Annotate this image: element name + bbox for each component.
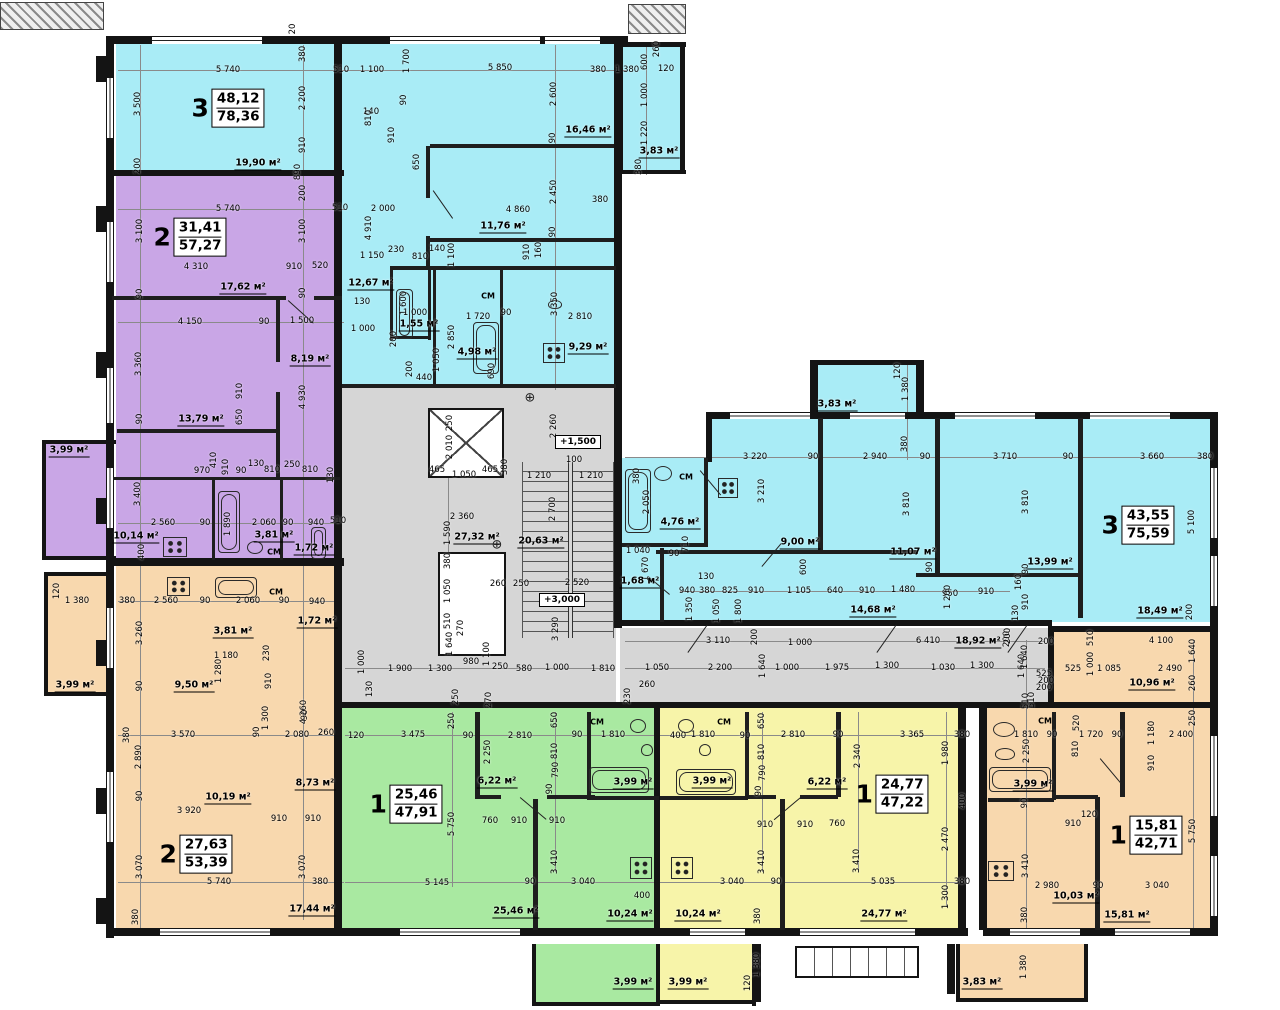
dimension-label: 600 bbox=[800, 559, 809, 575]
dimension-label: 910 bbox=[523, 244, 532, 260]
dimension-label: 1 500 bbox=[290, 317, 314, 326]
wall bbox=[42, 440, 46, 560]
dimension-label: 1 050 bbox=[713, 599, 722, 623]
dimension-label: 760 bbox=[482, 817, 498, 826]
window bbox=[1115, 929, 1190, 935]
apartment-label: 124,7747,22 bbox=[855, 775, 928, 814]
dimension-label: 1 975 bbox=[825, 664, 849, 673]
dimension-label: 5 100 bbox=[1188, 510, 1197, 534]
dimension-label: 690 bbox=[488, 363, 497, 379]
washing-machine-label: СМ bbox=[590, 718, 604, 727]
level-mark: +3,000 bbox=[539, 593, 585, 607]
dimension-label: 4 860 bbox=[506, 206, 530, 215]
dimension-label: 1 000 bbox=[358, 650, 367, 674]
total-area-value: 57,27 bbox=[179, 238, 222, 255]
dimension-label: 200 bbox=[406, 361, 415, 377]
window bbox=[1211, 736, 1217, 816]
dimension-label: 250 bbox=[446, 415, 455, 431]
dimension-label: 380 bbox=[501, 459, 510, 475]
washing-machine-label: СМ bbox=[1038, 717, 1052, 726]
dimension-label: 5 145 bbox=[425, 879, 449, 888]
dimension-label: 1 640 bbox=[759, 654, 768, 678]
partition-wall bbox=[916, 573, 1080, 577]
dimension-label: 380 bbox=[954, 878, 970, 887]
total-area-value: 47,22 bbox=[881, 795, 924, 812]
apartment-area-box: 43,5575,59 bbox=[1122, 506, 1175, 545]
room-area-label: 15,81 м² bbox=[1103, 910, 1150, 923]
dimension-label: 410 bbox=[210, 452, 219, 468]
dimension-label: 3 365 bbox=[900, 731, 924, 740]
dimension-label: 380 bbox=[123, 727, 132, 743]
window bbox=[1211, 468, 1217, 538]
dimension-label: 510 bbox=[330, 517, 346, 526]
dimension-label: 510 bbox=[333, 66, 349, 75]
dimension-label: 465 bbox=[482, 466, 498, 475]
region-apt1g-balcony bbox=[534, 944, 658, 1002]
dimension-label: 2 060 bbox=[236, 597, 260, 606]
apartment-rooms-count: 1 bbox=[1109, 823, 1126, 848]
dimension-label: 90 bbox=[1112, 731, 1123, 740]
window bbox=[1090, 413, 1170, 419]
dimension-label: 1 000 bbox=[351, 325, 375, 334]
dimension-label: 120 bbox=[53, 583, 62, 599]
dimension-label: 3 660 bbox=[1140, 453, 1164, 462]
apartment-label: 115,8142,71 bbox=[1109, 816, 1182, 855]
dimension-label: 1 000 bbox=[1087, 652, 1096, 676]
window bbox=[545, 37, 600, 44]
dimension-label: 90 bbox=[200, 597, 211, 606]
apartment-rooms-count: 3 bbox=[1101, 513, 1118, 538]
window bbox=[107, 608, 113, 668]
dimension-label: 200 bbox=[390, 331, 399, 347]
partition-wall bbox=[1078, 418, 1083, 618]
dimension-label: 380 bbox=[119, 597, 135, 606]
wall bbox=[616, 170, 686, 174]
dimension-label: 940 bbox=[309, 598, 325, 607]
dimension-label: 910 bbox=[549, 817, 565, 826]
dimension-label: 3 920 bbox=[177, 807, 201, 816]
dimension-label: 2 450 bbox=[550, 180, 559, 204]
dimension-label: 2 010 bbox=[446, 435, 455, 459]
dimension-label: 130 bbox=[1012, 605, 1021, 621]
room-area-label: 3,99 м² bbox=[668, 977, 709, 990]
dimension-label: 90 bbox=[572, 731, 583, 740]
apartment-label: 231,4157,27 bbox=[153, 218, 226, 257]
dimension-label: 940 bbox=[679, 587, 695, 596]
dimension-label: 1 590 bbox=[444, 521, 453, 545]
wall bbox=[44, 572, 48, 696]
dimension-label: 90 bbox=[1021, 798, 1030, 809]
dimension-label: 380 bbox=[633, 468, 642, 484]
stove-icon bbox=[718, 478, 738, 498]
dimension-label: 5 850 bbox=[488, 64, 512, 73]
partition-wall bbox=[660, 796, 748, 800]
dimension-label: 910 bbox=[286, 263, 302, 272]
dimension-label: 1 300 bbox=[428, 665, 452, 674]
dimension-label: 2 850 bbox=[448, 325, 457, 349]
dimension-label: 90 bbox=[136, 414, 145, 425]
partition-wall bbox=[1056, 795, 1098, 799]
dimension-label: 380 bbox=[132, 909, 141, 925]
living-area-value: 27,63 bbox=[185, 837, 228, 855]
dimension-label: 2 560 bbox=[154, 597, 178, 606]
floor-plan: 203805 7405101 1001 7005 8503801 3806002… bbox=[0, 0, 1280, 1010]
dimension-label: 650 bbox=[236, 409, 245, 425]
room-area-label: 17,44 м² bbox=[288, 904, 335, 917]
dimension-label: 1 100 bbox=[448, 243, 457, 267]
dimension-label: 910 bbox=[222, 459, 231, 475]
dimension-label: 90 bbox=[136, 791, 145, 802]
dimension-label: 2 200 bbox=[299, 86, 308, 110]
dimension-label: 3 400 bbox=[134, 482, 143, 506]
wall bbox=[956, 998, 1088, 1002]
dimension-label: 400 bbox=[634, 892, 650, 901]
dimension-label: 910 bbox=[265, 673, 274, 689]
washing-machine-label: СМ bbox=[679, 473, 693, 482]
dimension-label: 1 980 bbox=[942, 741, 951, 765]
room-area-label: 4,98 м² bbox=[457, 347, 498, 360]
room-area-label: 6,22 м² bbox=[477, 776, 518, 789]
dimension-label: 400 bbox=[670, 732, 686, 741]
dimension-label: 3 570 bbox=[171, 731, 195, 740]
wall bbox=[44, 572, 110, 576]
dimension-label: 3 100 bbox=[136, 219, 145, 243]
dimension-label: 3 410 bbox=[1022, 854, 1031, 878]
room-area-label: 10,96 м² bbox=[1128, 678, 1175, 691]
dimension-label: 1 300 bbox=[875, 662, 899, 671]
dimension-label: 3 410 bbox=[758, 850, 767, 874]
dimension-label: 400 bbox=[959, 793, 968, 809]
dimension-label: 1 380 bbox=[1020, 955, 1029, 979]
dimension-label: 970 bbox=[194, 467, 210, 476]
survey-mark: ⊕ bbox=[525, 391, 536, 406]
toilet-icon bbox=[993, 722, 1015, 737]
dimension-label: 5 740 bbox=[216, 205, 240, 214]
wall bbox=[532, 1002, 660, 1006]
room-area-label: 10,14 м² bbox=[112, 531, 159, 544]
dimension-label: 270 bbox=[457, 620, 466, 636]
dimension-label: 380 bbox=[954, 731, 970, 740]
dimension-label: 1 000 bbox=[545, 664, 569, 673]
dimension-label: 3 220 bbox=[743, 453, 767, 462]
dimension-label: 2 000 bbox=[371, 205, 395, 214]
window bbox=[107, 772, 113, 842]
dimension-label: 1 050 bbox=[433, 348, 442, 372]
dimension-label: 910 bbox=[1148, 755, 1157, 771]
dimension-label: 1 000 bbox=[775, 664, 799, 673]
dimension-label: 650 bbox=[758, 713, 767, 729]
room-area-label: 3,83 м² bbox=[817, 399, 858, 412]
dimension-label: 90 bbox=[1063, 453, 1074, 462]
dimension-label: 90 bbox=[259, 318, 270, 327]
partition-wall bbox=[656, 550, 918, 554]
room-area-label: 12,67 м² bbox=[347, 278, 394, 291]
room-area-label: 3,81 м² bbox=[213, 626, 254, 639]
window bbox=[1211, 556, 1217, 606]
dimension-label: 1 380 bbox=[65, 597, 89, 606]
room-area-label: 3,99 м² bbox=[692, 776, 733, 789]
stove-icon bbox=[671, 857, 693, 879]
window bbox=[1211, 856, 1217, 916]
room-area-label: 10,24 м² bbox=[606, 909, 653, 922]
dimension-label: 910 bbox=[1065, 820, 1081, 829]
dimension-label: 1 180 bbox=[1148, 721, 1157, 745]
survey-mark: ⊕ bbox=[492, 538, 503, 553]
dimension-label: 4 100 bbox=[1149, 637, 1173, 646]
dimension-label: 90 bbox=[400, 95, 409, 106]
dimension-label: 520 bbox=[312, 262, 328, 271]
dimension-label: 1 050 bbox=[452, 471, 476, 480]
dimension-label: 3 810 bbox=[903, 492, 912, 516]
apartment-area-box: 48,1278,36 bbox=[212, 89, 265, 128]
dimension-label: 4 910 bbox=[365, 216, 374, 240]
wall bbox=[979, 708, 987, 930]
living-area-value: 43,55 bbox=[1127, 508, 1170, 526]
room-area-label: 3,83 м² bbox=[962, 977, 1003, 990]
dimension-label: 1 720 bbox=[1079, 731, 1103, 740]
dimension-label: 90 bbox=[549, 227, 558, 238]
dimension-label: 510 bbox=[1087, 630, 1096, 646]
room-area-label: 1,68 м² bbox=[620, 576, 661, 589]
dimension-label: 260 bbox=[653, 41, 662, 57]
dimension-label: 250 bbox=[448, 713, 457, 729]
dimension-label: 380 bbox=[901, 436, 910, 452]
dimension-label: 5 740 bbox=[207, 878, 231, 887]
apartment-label: 343,5575,59 bbox=[1101, 506, 1174, 545]
living-area-value: 31,41 bbox=[179, 220, 222, 238]
dimension-label: 1 050 bbox=[645, 664, 669, 673]
dimension-label: 1 300 bbox=[262, 706, 271, 730]
wall bbox=[42, 556, 116, 560]
dimension-label: 200 bbox=[1038, 677, 1054, 686]
room-area-label: 3,99 м² bbox=[613, 777, 654, 790]
dimension-label: 160 bbox=[535, 242, 544, 258]
total-area-value: 53,39 bbox=[185, 855, 228, 872]
window bbox=[160, 929, 270, 935]
dimension-label: 810 bbox=[264, 466, 280, 475]
wall bbox=[956, 944, 960, 1002]
stove-icon bbox=[630, 857, 652, 879]
dimension-label: 20 bbox=[289, 24, 298, 35]
apartment-rooms-count: 2 bbox=[159, 842, 176, 867]
apartment-rooms-count: 3 bbox=[191, 96, 208, 121]
dimension-label: 825 bbox=[722, 587, 738, 596]
dimension-label: 1 480 bbox=[891, 586, 915, 595]
dimension-label: 120 bbox=[1081, 811, 1097, 820]
dimension-label: 5 740 bbox=[216, 66, 240, 75]
apartment-rooms-count: 2 bbox=[153, 225, 170, 250]
wall bbox=[810, 360, 924, 365]
room-area-label: 13,79 м² bbox=[177, 414, 224, 427]
dimension-label: 380 bbox=[1197, 453, 1213, 462]
dimension-label: 810 bbox=[551, 743, 560, 759]
window bbox=[800, 929, 915, 935]
dimension-label: 90 bbox=[755, 786, 764, 797]
dimension-label: 465 bbox=[429, 466, 445, 475]
dimension-label: 230 bbox=[263, 645, 272, 661]
dimension-label: 2 050 bbox=[643, 490, 652, 514]
dimension-label: 3 710 bbox=[993, 453, 1017, 462]
dimension-label: 1 890 bbox=[224, 512, 233, 536]
dimension-label: 810 bbox=[758, 744, 767, 760]
dimension-label: 910 bbox=[797, 821, 813, 830]
partition-wall bbox=[818, 418, 823, 551]
wall bbox=[44, 692, 110, 696]
dimension-label: 1 220 bbox=[641, 121, 650, 145]
dimension-label: 120 bbox=[744, 975, 753, 991]
dimension-label: 2 560 bbox=[151, 519, 175, 528]
living-area-value: 24,77 bbox=[881, 777, 924, 795]
dimension-label: 3 810 bbox=[1022, 490, 1031, 514]
dimension-label: 810 bbox=[302, 466, 318, 475]
dimension-label: 1 900 bbox=[388, 665, 412, 674]
dimension-label: 940 bbox=[308, 519, 324, 528]
dimension-label: 1 380 bbox=[902, 377, 911, 401]
dimension-label: 1 105 bbox=[787, 587, 811, 596]
dimension-label: 2 340 bbox=[854, 744, 863, 768]
dimension-label: 2 250 bbox=[1023, 739, 1032, 763]
sink-icon bbox=[641, 744, 653, 756]
dimension-label: 90 bbox=[1093, 882, 1104, 891]
room-area-label: 18,92 м² bbox=[954, 636, 1001, 649]
dimension-label: 160 bbox=[1015, 574, 1024, 590]
room-area-label: 9,50 м² bbox=[174, 680, 215, 693]
dimension-label: 980 bbox=[463, 658, 479, 667]
dimension-label: 2 490 bbox=[1158, 665, 1182, 674]
dimension-label: 1 000 bbox=[788, 639, 812, 648]
dimension-label: 910 bbox=[978, 588, 994, 597]
dimension-label: 260 bbox=[318, 729, 334, 738]
partition-wall bbox=[426, 146, 430, 198]
dimension-label: 380 bbox=[635, 159, 644, 175]
dimension-label: 250 bbox=[1189, 710, 1198, 726]
partition-wall bbox=[314, 296, 342, 300]
dimension-label: 1 050 bbox=[444, 579, 453, 603]
dimension-label: 1 000 bbox=[403, 309, 427, 318]
window bbox=[400, 929, 520, 935]
total-area-value: 78,36 bbox=[217, 109, 260, 126]
window bbox=[107, 468, 113, 528]
dimension-label: 1 380 bbox=[753, 953, 762, 977]
dimension-label: 2 600 bbox=[550, 82, 559, 106]
staircase bbox=[522, 462, 614, 638]
dimension-label: 130 bbox=[366, 681, 375, 697]
dimension-label: 5 750 bbox=[1189, 819, 1198, 843]
dimension-label: 910 bbox=[388, 127, 397, 143]
apartment-label: 125,4647,91 bbox=[369, 785, 442, 824]
dimension-label: 3 410 bbox=[551, 850, 560, 874]
dimension-label: 90 bbox=[669, 550, 680, 559]
room-area-label: 13,99 м² bbox=[1026, 557, 1073, 570]
dimension-label: 250 bbox=[513, 580, 529, 589]
apartment-label: 348,1278,36 bbox=[191, 89, 264, 128]
room-area-label: 25,46 м² bbox=[492, 906, 539, 919]
dimension-label: 810 bbox=[1072, 741, 1081, 757]
dimension-label: 4 150 bbox=[178, 318, 202, 327]
dimension-label: 520 bbox=[1073, 715, 1082, 731]
dimension-label: 3 475 bbox=[401, 731, 425, 740]
dimension-label: 2 700 bbox=[549, 497, 558, 521]
living-area-value: 48,12 bbox=[217, 91, 260, 109]
dimension-label: 2 520 bbox=[565, 579, 589, 588]
room-area-label: 18,49 м² bbox=[1136, 606, 1183, 619]
room-area-label: 16,46 м² bbox=[564, 125, 611, 138]
room-area-label: 9,29 м² bbox=[568, 342, 609, 355]
dimension-label: 200 bbox=[299, 185, 308, 201]
stove-icon bbox=[543, 343, 565, 363]
dimension-label: 250 bbox=[492, 663, 508, 672]
dimension-label: 380 bbox=[592, 196, 608, 205]
dimension-label: 1 380 bbox=[615, 66, 639, 75]
sink-icon bbox=[699, 744, 711, 756]
hatched-wall-block bbox=[0, 2, 104, 30]
dimension-label: 250 bbox=[452, 689, 461, 705]
window bbox=[850, 413, 905, 419]
dimension-label: 100 bbox=[566, 456, 582, 465]
wall bbox=[96, 898, 108, 924]
dimension-label: 3 260 bbox=[136, 621, 145, 645]
dimension-label: 250 bbox=[284, 461, 300, 470]
wall bbox=[618, 620, 1052, 626]
partition-wall bbox=[390, 266, 616, 270]
total-area-value: 42,71 bbox=[1135, 836, 1178, 853]
stove-icon bbox=[167, 577, 190, 596]
dimension-label: 90 bbox=[236, 467, 247, 476]
washing-machine-label: СМ bbox=[269, 588, 283, 597]
dimension-label: 1 350 bbox=[686, 597, 695, 621]
dimension-label: 790 bbox=[552, 762, 561, 778]
dimension-label: 90 bbox=[136, 289, 145, 300]
dimension-label: 3 360 bbox=[135, 352, 144, 376]
partition-wall bbox=[112, 477, 340, 480]
dimension-label: 380 bbox=[699, 587, 715, 596]
dimension-label: 3 040 bbox=[720, 878, 744, 887]
dimension-label: 130 bbox=[354, 298, 370, 307]
dimension-label: 1 800 bbox=[735, 599, 744, 623]
room-area-label: 3,81 м² bbox=[254, 530, 295, 543]
level-mark: +1,500 bbox=[555, 435, 601, 449]
window bbox=[690, 929, 745, 935]
partition-wall bbox=[426, 238, 614, 242]
dimension-label: 380 bbox=[444, 553, 453, 569]
toilet-icon bbox=[247, 541, 263, 554]
partition-wall bbox=[276, 300, 280, 362]
dimension-label: 200 bbox=[1038, 638, 1054, 647]
living-area-value: 25,46 bbox=[395, 787, 438, 805]
dimension-label: 3 290 bbox=[552, 617, 561, 641]
dimension-label: 130 bbox=[327, 467, 336, 483]
dimension-label: 2 470 bbox=[942, 827, 951, 851]
dimension-label: 1 100 bbox=[483, 642, 492, 666]
partition-wall bbox=[704, 458, 708, 546]
apartment-rooms-count: 1 bbox=[369, 792, 386, 817]
dimension-label: 3 070 bbox=[136, 855, 145, 879]
dimension-label: 1 280 bbox=[215, 659, 224, 683]
wall bbox=[706, 412, 712, 462]
stove-icon bbox=[163, 537, 187, 557]
dimension-label: 120 bbox=[348, 732, 364, 741]
dimension-label: 90 bbox=[463, 732, 474, 741]
room-area-label: 3,99 м² bbox=[613, 977, 654, 990]
dimension-label: 90 bbox=[926, 562, 935, 573]
living-area-value: 15,81 bbox=[1135, 818, 1178, 836]
entrance-porch bbox=[795, 946, 919, 978]
wall bbox=[342, 702, 1218, 708]
dimension-label: 1 085 bbox=[1097, 665, 1121, 674]
dimension-label: 510 bbox=[332, 204, 348, 213]
partition-wall bbox=[212, 477, 215, 560]
wall bbox=[680, 42, 685, 172]
